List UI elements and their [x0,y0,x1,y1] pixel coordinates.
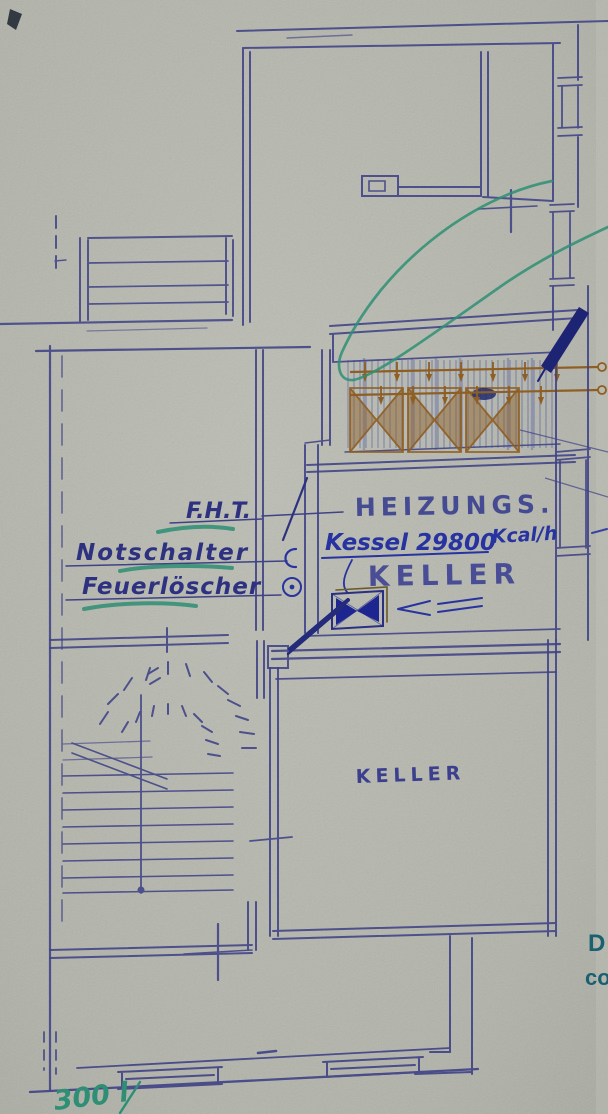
notschalter-label: Notschalter [76,540,249,566]
blueprint-scan: F.H.T. Notschalter Feuerlöscher HEIZUNGS… [0,0,608,1114]
heizungs-label: HEIZUNGS. [355,490,555,522]
floor-plan-drawing: F.H.T. Notschalter Feuerlöscher HEIZUNGS… [0,0,608,1114]
keller-room-label: KELLER [355,762,465,788]
edge-partial-text-bottom: co [585,965,608,990]
kessel-label: Kessel 29800 [325,530,496,556]
edge-partial-text-top: D [588,930,605,957]
heizungskeller-room-label: KELLER [368,557,522,593]
feuerloescher-label: Feuerlöscher [82,574,262,600]
fht-label: F.H.T. [186,499,251,524]
kessel-unit-label: Kcal/h [491,523,558,548]
